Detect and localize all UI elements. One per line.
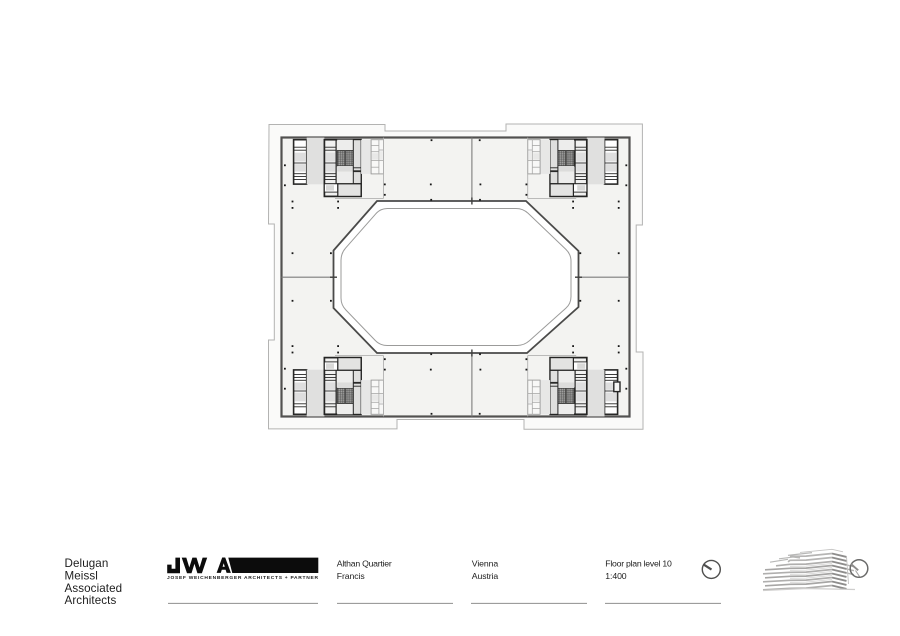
svg-text:Associated: Associated (65, 582, 123, 595)
svg-text:1:400: 1:400 (605, 571, 627, 581)
svg-text:Floor plan level 10: Floor plan level 10 (605, 558, 672, 568)
svg-text:Delugan: Delugan (65, 557, 109, 570)
svg-text:Francis: Francis (337, 571, 366, 581)
svg-text:JOSEF WEICHENBERGER ARCHITECTS: JOSEF WEICHENBERGER ARCHITECTS + PARTNER (167, 575, 319, 581)
svg-text:Vienna: Vienna (472, 558, 499, 568)
svg-text:Austria: Austria (472, 571, 499, 581)
svg-text:Althan Quartier: Althan Quartier (337, 558, 392, 568)
svg-text:Architects: Architects (65, 594, 117, 607)
svg-text:Meissl: Meissl (65, 569, 98, 582)
